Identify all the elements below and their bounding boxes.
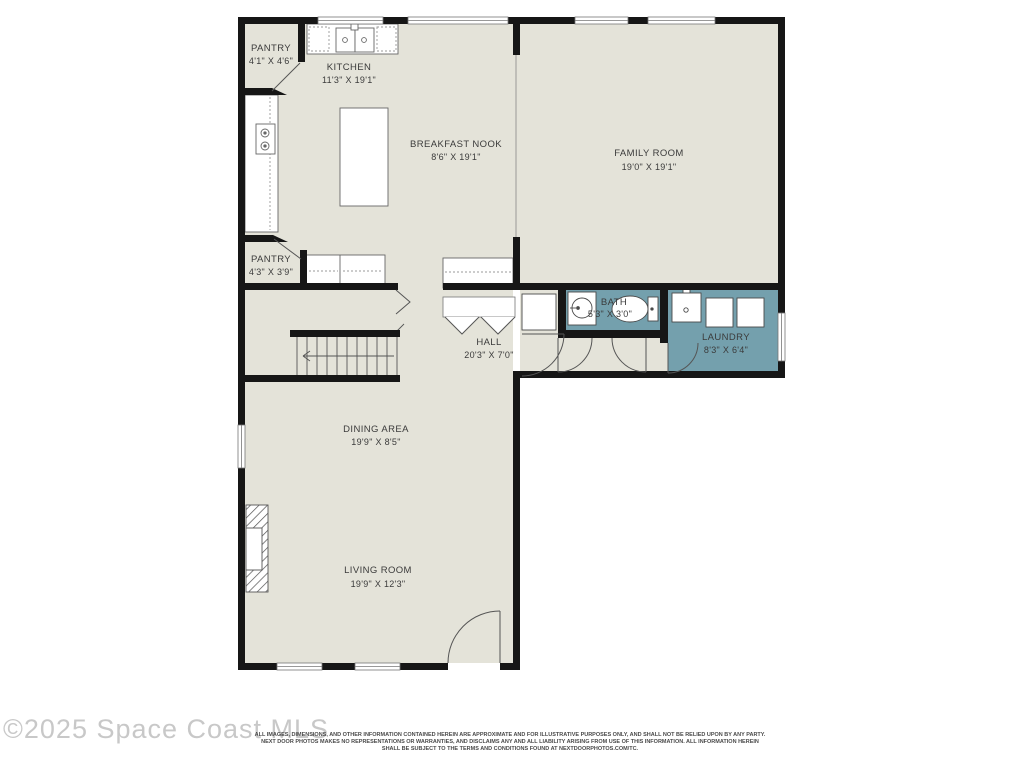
- dims-family-room: 19'0" X 19'1": [622, 162, 677, 172]
- label-bath: BATH: [601, 297, 627, 308]
- wall-nook-divider-lower: [513, 237, 520, 290]
- label-pantry-upper: PANTRY: [251, 43, 291, 54]
- wall-laundry-bottom: [513, 371, 785, 378]
- entry-door-opening: [448, 663, 500, 670]
- label-hall: HALL: [476, 337, 501, 348]
- disclaimer-line-3: SHALL BE SUBJECT TO THE TERMS AND CONDIT…: [245, 746, 775, 753]
- dims-dining-area: 19'9" X 8'5": [351, 437, 400, 447]
- dims-living-room: 19'9" X 12'3": [351, 579, 406, 589]
- wall-pantry-upper-bottom: [238, 88, 272, 95]
- label-family-room: FAMILY ROOM: [614, 148, 684, 159]
- disclaimer-line-2: NEXT DOOR PHOTOS MAKES NO REPRESENTATION…: [245, 739, 775, 746]
- wall-family-room-bottom: [513, 283, 785, 290]
- hall-closet-recess: [443, 297, 515, 317]
- wall-hall-closet-top: [443, 283, 520, 290]
- dims-laundry: 8'3" X 6'4": [704, 345, 748, 355]
- sink-drain-right: [362, 38, 367, 43]
- wall-stairs-bottom: [238, 375, 400, 382]
- wall-nook-divider-stub: [513, 17, 520, 55]
- wall-living-right: [513, 371, 520, 670]
- dims-breakfast-nook: 8'6" X 19'1": [431, 152, 480, 162]
- burner-1-dot: [264, 132, 266, 134]
- wall-exterior-left: [238, 17, 245, 670]
- dryer: [737, 298, 764, 327]
- label-living-room: LIVING ROOM: [344, 565, 412, 576]
- label-dining-area: DINING AREA: [343, 424, 409, 435]
- sink-drain-left: [343, 38, 348, 43]
- dims-pantry-lower: 4'3" X 3'9": [249, 267, 293, 277]
- label-kitchen: KITCHEN: [327, 62, 372, 73]
- kitchen-island: [340, 108, 388, 206]
- cooktop: [256, 124, 275, 154]
- disclaimer-block: ALL IMAGES, DIMENSIONS, AND OTHER INFORM…: [245, 732, 775, 753]
- toilet-flush-dot: [651, 308, 653, 310]
- hall-closet-box: [522, 294, 556, 330]
- wall-hall-top-left: [238, 283, 398, 290]
- dims-hall: 20'3" X 7'0": [464, 350, 513, 360]
- wall-pantry-lower-top: [238, 235, 273, 242]
- kitchen-faucet: [351, 24, 358, 30]
- washer: [706, 298, 733, 327]
- wall-pantry-upper-right: [298, 17, 305, 62]
- wall-bath-bottom: [558, 330, 668, 338]
- label-laundry: LAUNDRY: [702, 332, 750, 343]
- wall-laundry-left: [660, 283, 668, 343]
- fireplace: [246, 505, 268, 592]
- fireplace-firebox: [246, 528, 262, 570]
- label-pantry-lower: PANTRY: [251, 254, 291, 265]
- label-breakfast-nook: BREAKFAST NOOK: [410, 139, 502, 150]
- wall-bath-left: [558, 283, 566, 338]
- disclaimer-line-1: ALL IMAGES, DIMENSIONS, AND OTHER INFORM…: [245, 732, 775, 739]
- dims-kitchen: 11'3" X 19'1": [322, 75, 376, 85]
- wall-stairs-top: [290, 330, 400, 337]
- dims-pantry-upper: 4'1" X 4'6": [249, 56, 293, 66]
- burner-2-dot: [264, 145, 266, 147]
- kitchen-counter-left: [245, 95, 278, 232]
- sink-drain: [577, 307, 580, 310]
- floor-plan-page: PANTRY 4'1" X 4'6" KITCHEN 11'3" X 19'1"…: [0, 0, 1024, 768]
- floor-plan-drawing: PANTRY 4'1" X 4'6" KITCHEN 11'3" X 19'1"…: [0, 0, 1024, 768]
- dims-bath: 5'3" X 3'0": [588, 309, 632, 319]
